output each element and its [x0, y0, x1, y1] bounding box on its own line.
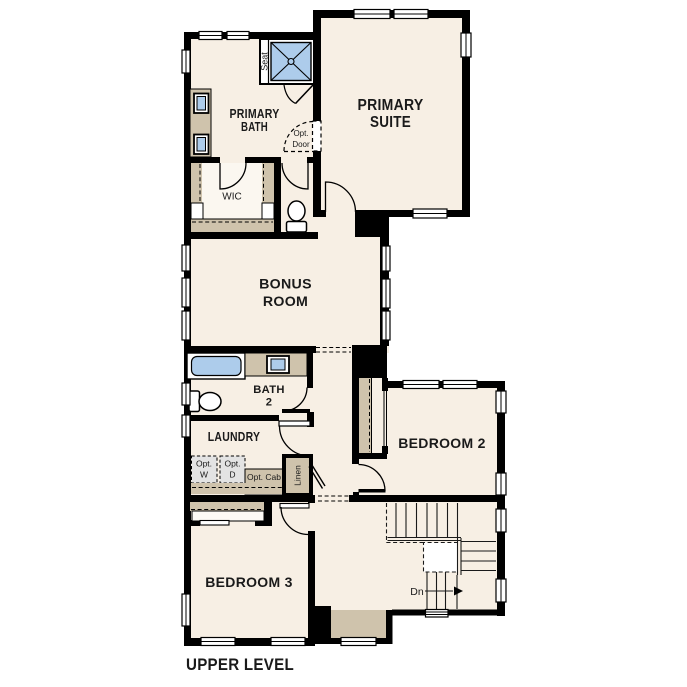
- svg-text:SUITE: SUITE: [370, 114, 411, 131]
- svg-text:BATH: BATH: [253, 384, 284, 396]
- svg-text:D: D: [229, 470, 235, 480]
- svg-text:Door: Door: [292, 140, 310, 149]
- svg-text:BEDROOM 2: BEDROOM 2: [398, 435, 486, 451]
- svg-text:Opt.: Opt.: [196, 459, 212, 469]
- svg-text:Opt.: Opt.: [293, 129, 308, 138]
- svg-text:Dn: Dn: [410, 586, 424, 598]
- svg-text:Linen: Linen: [293, 465, 303, 486]
- svg-text:2: 2: [266, 397, 273, 409]
- svg-text:ROOM: ROOM: [263, 294, 308, 310]
- svg-text:Seat: Seat: [260, 52, 270, 71]
- svg-text:BATH: BATH: [241, 120, 268, 134]
- svg-text:LAUNDRY: LAUNDRY: [208, 430, 261, 444]
- svg-text:WIC: WIC: [222, 192, 241, 203]
- svg-text:W: W: [200, 470, 208, 480]
- svg-text:BEDROOM 3: BEDROOM 3: [205, 574, 293, 590]
- svg-text:PRIMARY: PRIMARY: [230, 107, 280, 121]
- svg-text:Opt. Cab: Opt. Cab: [247, 472, 281, 482]
- svg-text:Opt.: Opt.: [224, 459, 240, 469]
- svg-text:BONUS: BONUS: [259, 277, 312, 293]
- svg-text:PRIMARY: PRIMARY: [358, 97, 424, 114]
- svg-text:UPPER LEVEL: UPPER LEVEL: [186, 655, 294, 674]
